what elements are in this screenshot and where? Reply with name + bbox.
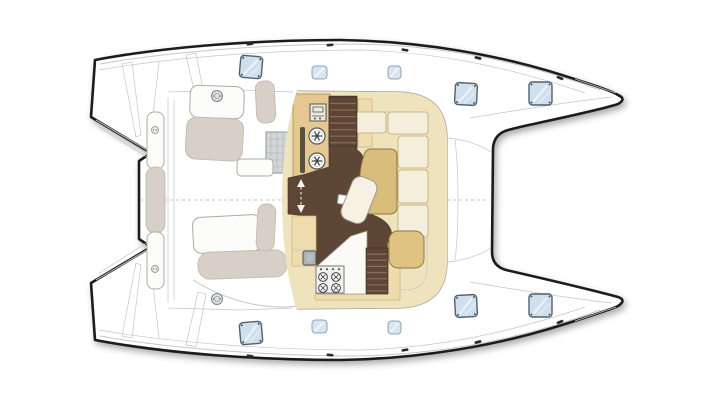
hatch-small — [312, 320, 327, 333]
hatch-small — [312, 66, 327, 79]
catamaran-deck-plan — [0, 0, 720, 400]
hatch-large — [529, 294, 552, 317]
sink — [303, 251, 316, 265]
settee-cushion-top-2 — [388, 112, 428, 134]
transom-locker-top — [147, 112, 164, 169]
snowflake-icon — [309, 153, 325, 169]
transom-pad-center — [146, 167, 165, 233]
hatch-large — [239, 321, 263, 345]
hatch-small — [388, 321, 401, 334]
settee-cushion-right-2 — [398, 170, 428, 203]
hatch-large — [454, 294, 477, 317]
saloon-interior — [282, 91, 447, 309]
cleat — [326, 43, 333, 46]
hatch-small — [388, 66, 401, 79]
cockpit-sunpad-bottom — [192, 214, 262, 254]
cleat — [326, 353, 333, 356]
snowflake-icon — [309, 128, 325, 144]
transom-locker-bottom — [147, 232, 164, 289]
deck-fitting — [152, 266, 159, 273]
galley-handrail — [300, 127, 305, 173]
winch — [212, 294, 223, 305]
cockpit-bench-aft — [198, 249, 288, 279]
cockpit-step — [237, 159, 273, 176]
winch — [212, 91, 223, 102]
cockpit-backrest-top — [255, 81, 276, 124]
deck-fitting — [152, 127, 159, 134]
stairs — [366, 248, 388, 294]
stove — [316, 266, 344, 293]
cockpit-backrest-bottom — [256, 204, 276, 252]
oven-icon — [310, 104, 326, 121]
aft-bench — [389, 231, 424, 268]
hatch-large — [239, 55, 263, 79]
deck-plan-drawing — [0, 0, 720, 400]
cabin — [282, 91, 458, 309]
cockpit-sunpad-top — [185, 117, 244, 162]
hatch-large — [454, 82, 477, 105]
settee-cushion-right-1 — [398, 136, 428, 168]
hatch-large — [529, 82, 552, 105]
stairs — [329, 97, 357, 146]
